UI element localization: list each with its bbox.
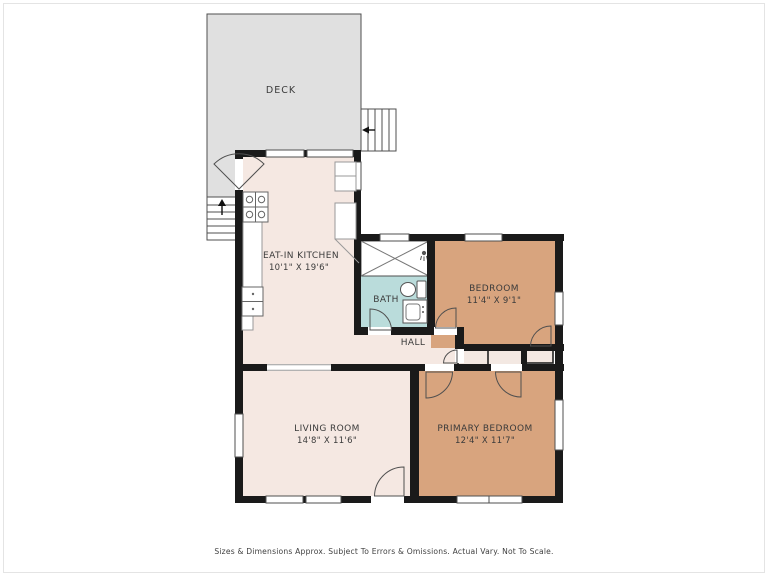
bath-sink-icon bbox=[403, 300, 427, 323]
bedroom-dimensions: 11'4" X 9'1" bbox=[467, 296, 521, 306]
primary-bedroom-dimensions: 12'4" X 11'7" bbox=[455, 436, 515, 446]
disclaimer-text: Sizes & Dimensions Approx. Subject To Er… bbox=[214, 547, 553, 556]
hall-label: HALL bbox=[401, 338, 426, 348]
kitchen-dimensions: 10'1" X 19'6" bbox=[269, 263, 329, 273]
bath-label: BATH bbox=[373, 295, 399, 305]
floorplan-page: DECK EAT-IN KITCHEN 10'1" X 19'6" BATH B… bbox=[0, 0, 768, 576]
shower-tub-icon bbox=[361, 241, 429, 276]
kitchen-sink-icon bbox=[242, 287, 263, 316]
floorplan-drawing bbox=[0, 0, 768, 576]
living-room-dimensions: 14'8" X 11'6" bbox=[297, 436, 357, 446]
stairs-up-icon bbox=[207, 197, 237, 240]
living-room-label: LIVING ROOM bbox=[294, 424, 360, 434]
stairs-down-icon bbox=[361, 109, 396, 151]
deck-label: DECK bbox=[266, 85, 296, 96]
primary-bedroom-label: PRIMARY BEDROOM bbox=[437, 424, 532, 434]
kitchen-label: EAT-IN KITCHEN bbox=[263, 251, 339, 261]
living-room-floor bbox=[240, 368, 414, 500]
stove-icon bbox=[243, 192, 268, 222]
primary-bedroom-floor bbox=[415, 368, 559, 500]
bedroom-label: BEDROOM bbox=[469, 284, 519, 294]
